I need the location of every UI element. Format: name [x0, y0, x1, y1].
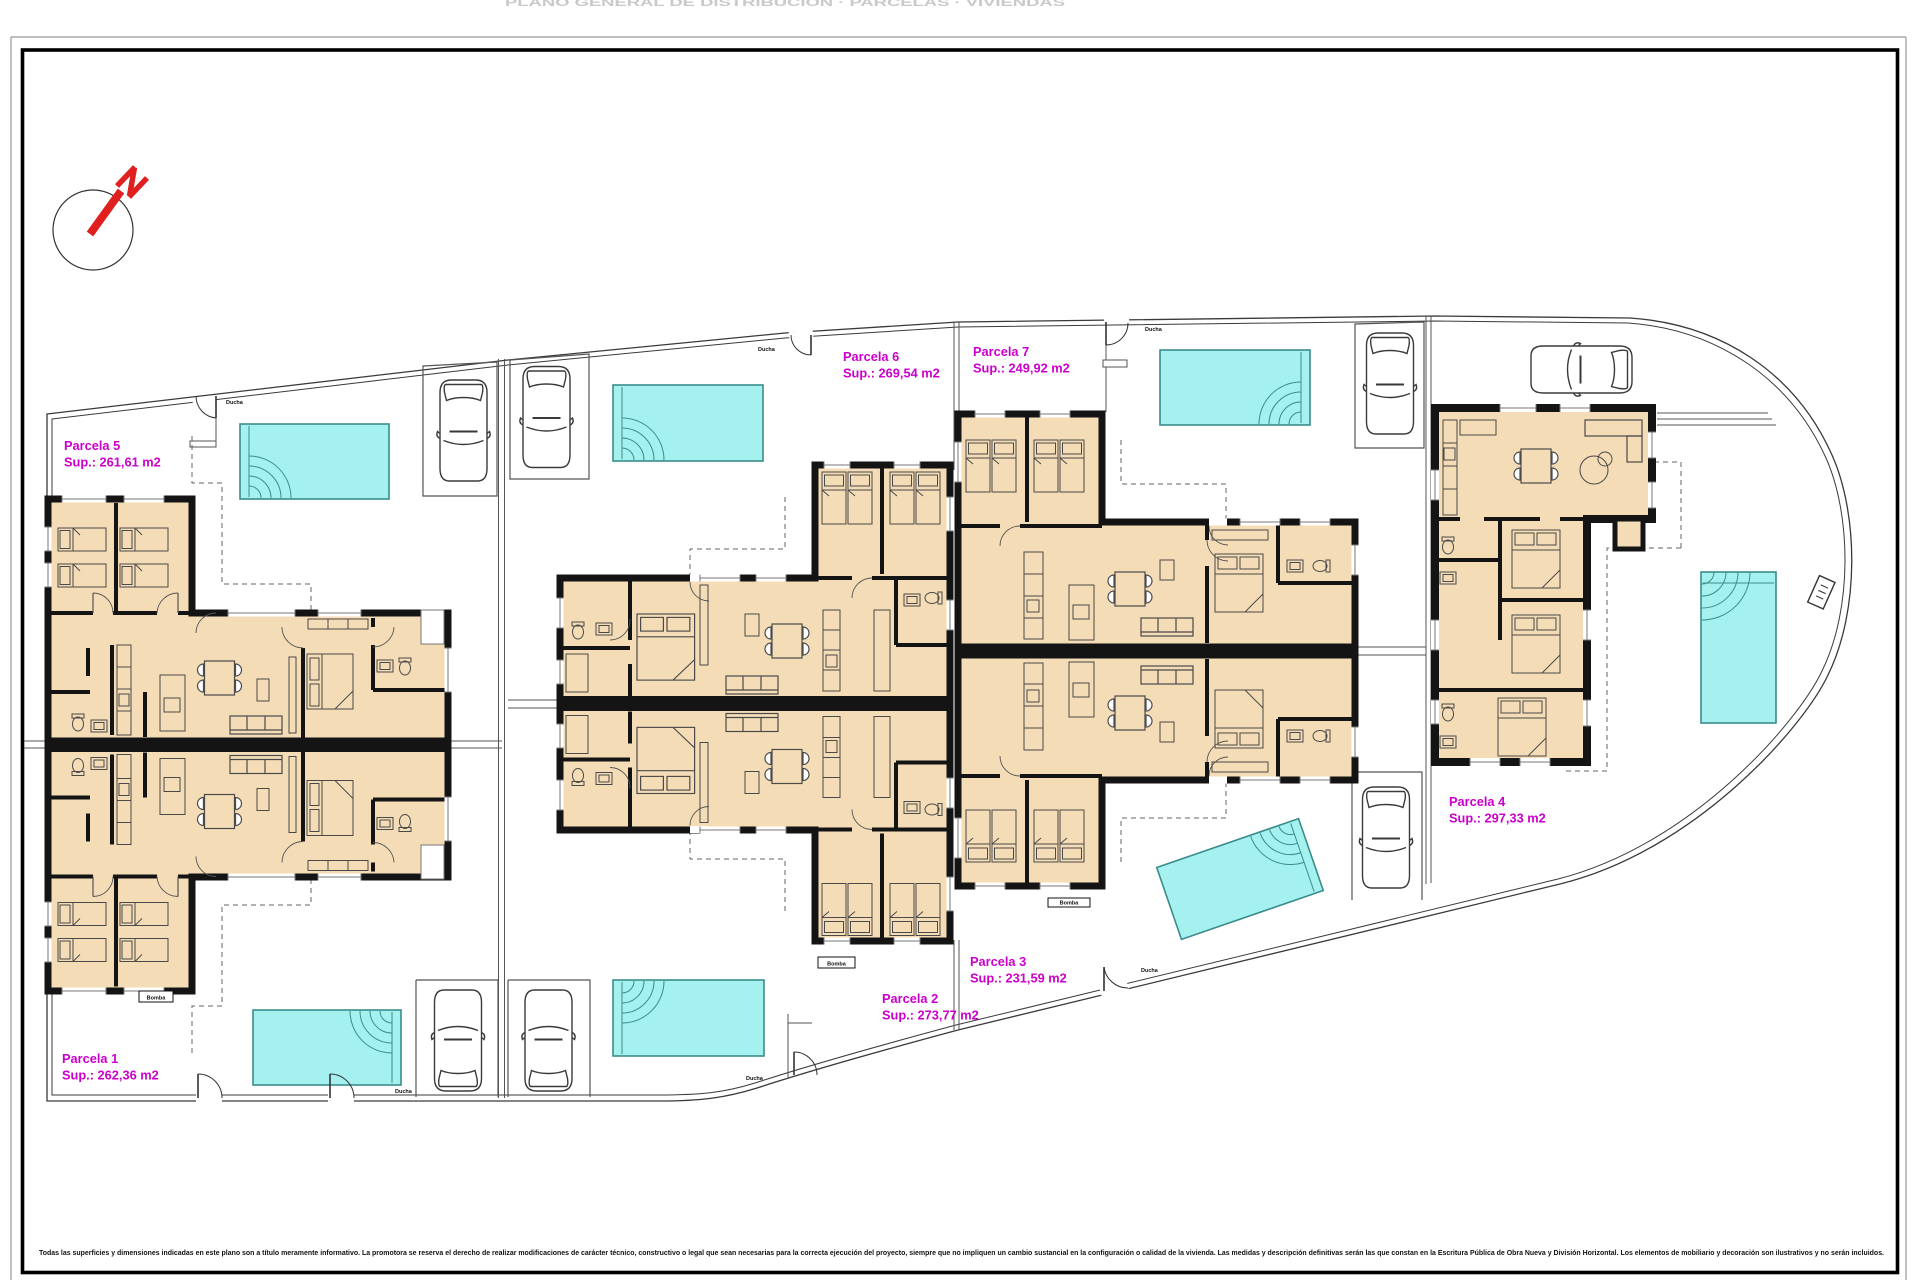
svg-text:Bomba: Bomba — [1060, 901, 1080, 907]
svg-text:Ducha: Ducha — [1145, 327, 1163, 333]
svg-text:Ducha: Ducha — [758, 347, 776, 353]
svg-text:Sup.: 261,61 m2: Sup.: 261,61 m2 — [64, 455, 161, 470]
svg-text:Parcela 4: Parcela 4 — [1449, 794, 1506, 809]
svg-text:Sup.: 262,36 m2: Sup.: 262,36 m2 — [62, 1068, 159, 1083]
svg-text:Ducha: Ducha — [395, 1089, 413, 1095]
svg-text:Parcela 5: Parcela 5 — [64, 438, 120, 453]
svg-text:Ducha: Ducha — [226, 400, 244, 406]
svg-text:Sup.: 231,59 m2: Sup.: 231,59 m2 — [970, 971, 1067, 986]
svg-text:Sup.: 249,92 m2: Sup.: 249,92 m2 — [973, 361, 1070, 376]
svg-text:Bomba: Bomba — [827, 962, 847, 968]
svg-text:PLANO GENERAL DE DISTRIBUCION: PLANO GENERAL DE DISTRIBUCION · PARCELAS… — [505, 0, 1065, 9]
svg-text:Sup.: 297,33 m2: Sup.: 297,33 m2 — [1449, 811, 1546, 826]
svg-text:Parcela 7: Parcela 7 — [973, 344, 1029, 359]
svg-text:Sup.: 273,77 m2: Sup.: 273,77 m2 — [882, 1008, 979, 1023]
svg-text:Ducha: Ducha — [746, 1076, 764, 1082]
svg-text:Parcela 3: Parcela 3 — [970, 954, 1026, 969]
svg-text:Ducha: Ducha — [1141, 968, 1159, 974]
svg-text:Todas las superficies y dimens: Todas las superficies y dimensiones indi… — [39, 1248, 1884, 1257]
svg-text:Parcela 6: Parcela 6 — [843, 349, 899, 364]
svg-text:Sup.: 269,54 m2: Sup.: 269,54 m2 — [843, 366, 940, 381]
svg-text:Parcela 2: Parcela 2 — [882, 991, 938, 1006]
svg-text:Bomba: Bomba — [147, 996, 167, 1002]
svg-text:Parcela 1: Parcela 1 — [62, 1051, 118, 1066]
